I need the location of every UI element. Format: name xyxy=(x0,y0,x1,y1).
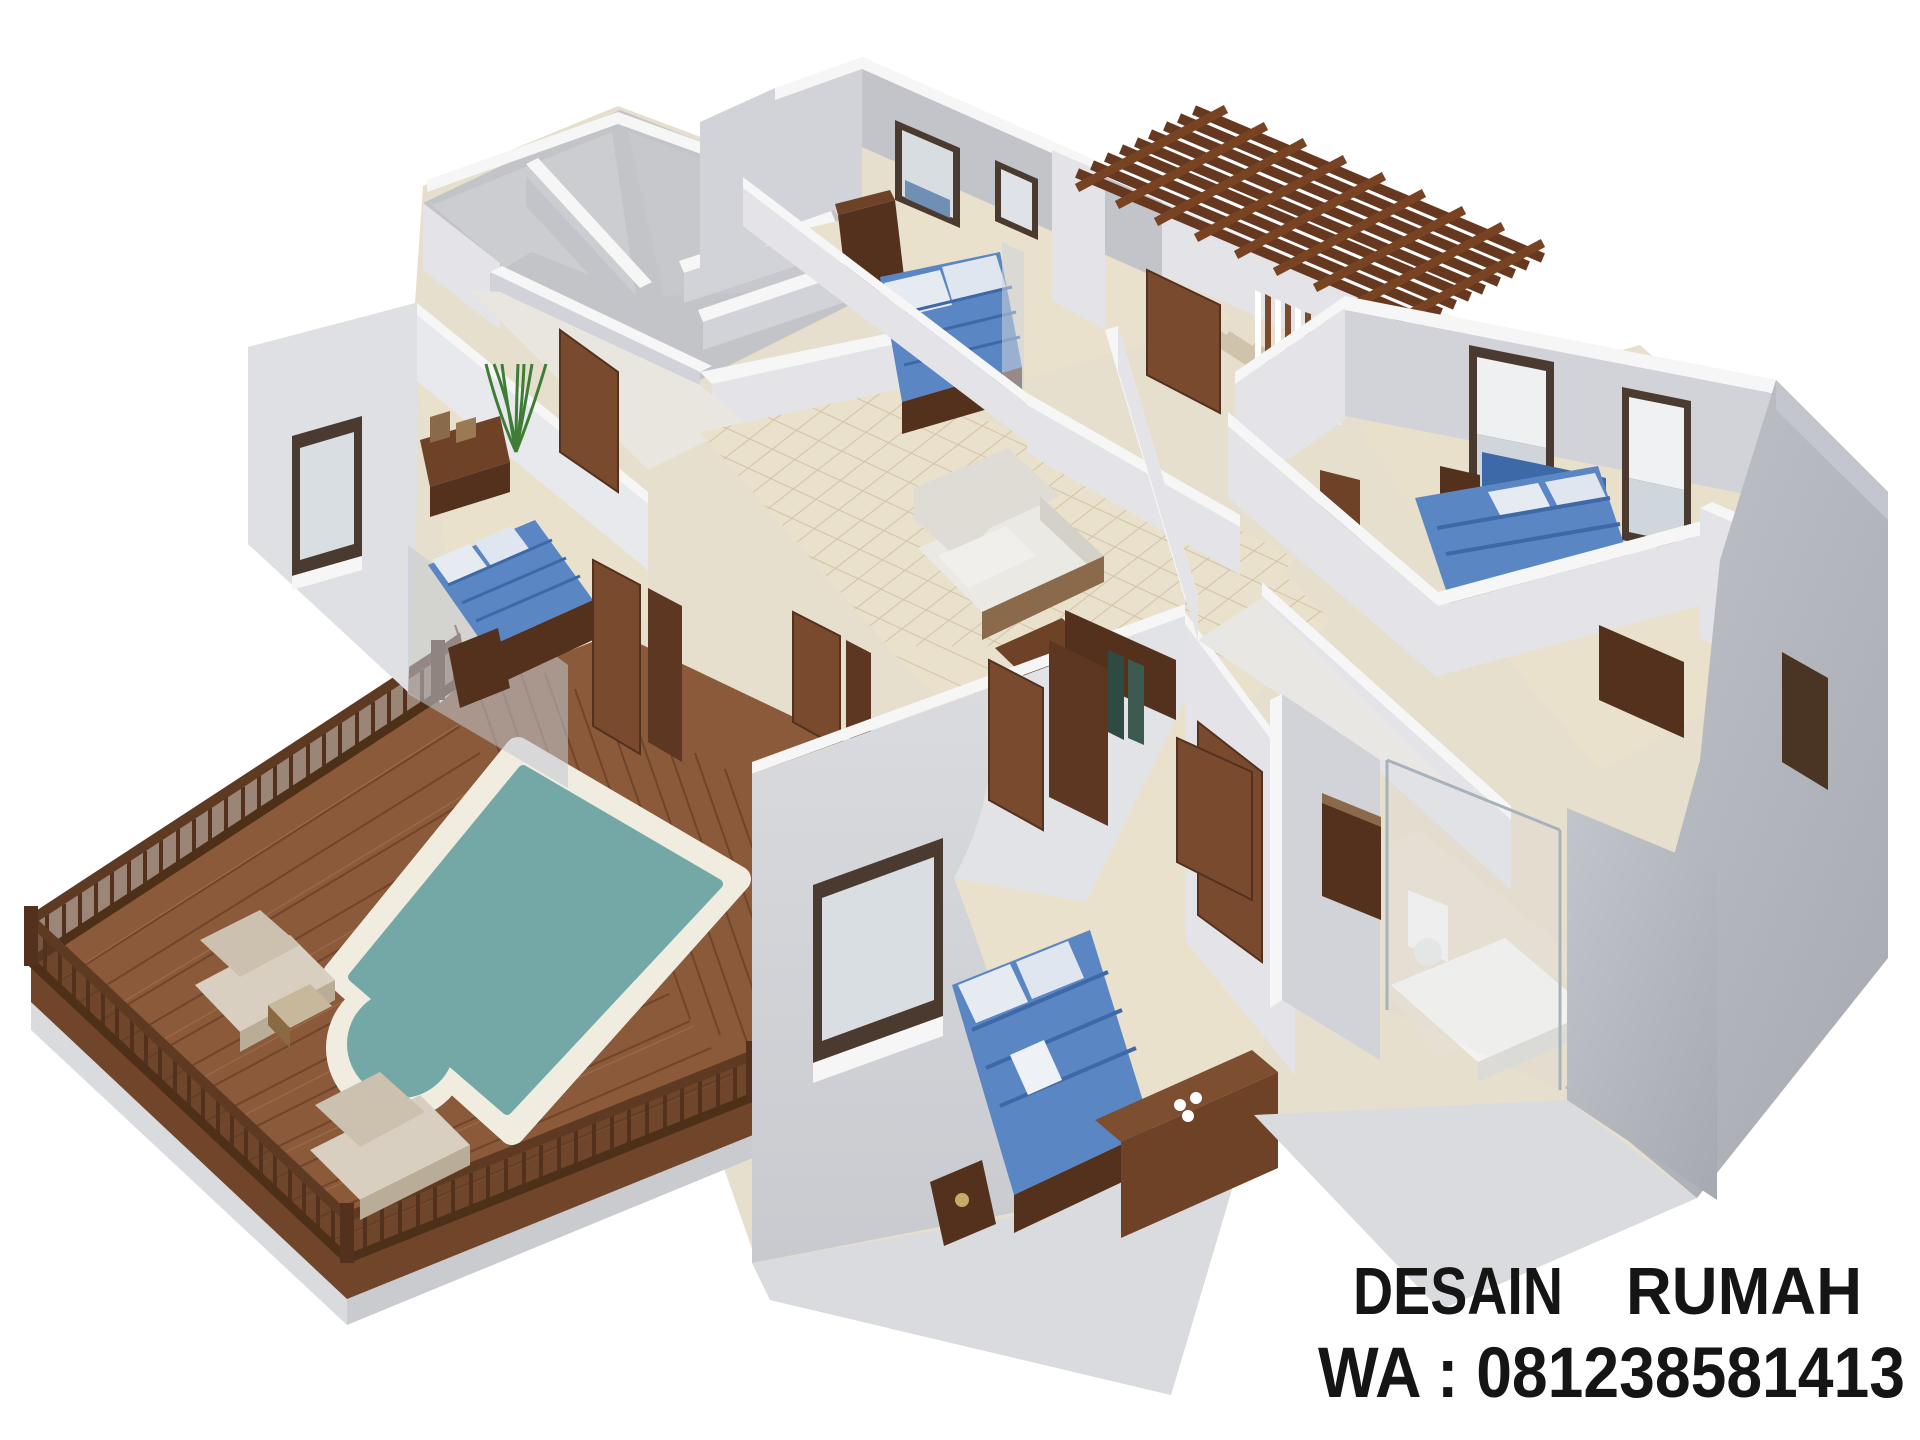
svg-text:RUMAH: RUMAH xyxy=(1626,1254,1862,1329)
svg-text:DESAIN: DESAIN xyxy=(1353,1254,1563,1329)
svg-text:WA : 081238581413: WA : 081238581413 xyxy=(1318,1334,1905,1413)
